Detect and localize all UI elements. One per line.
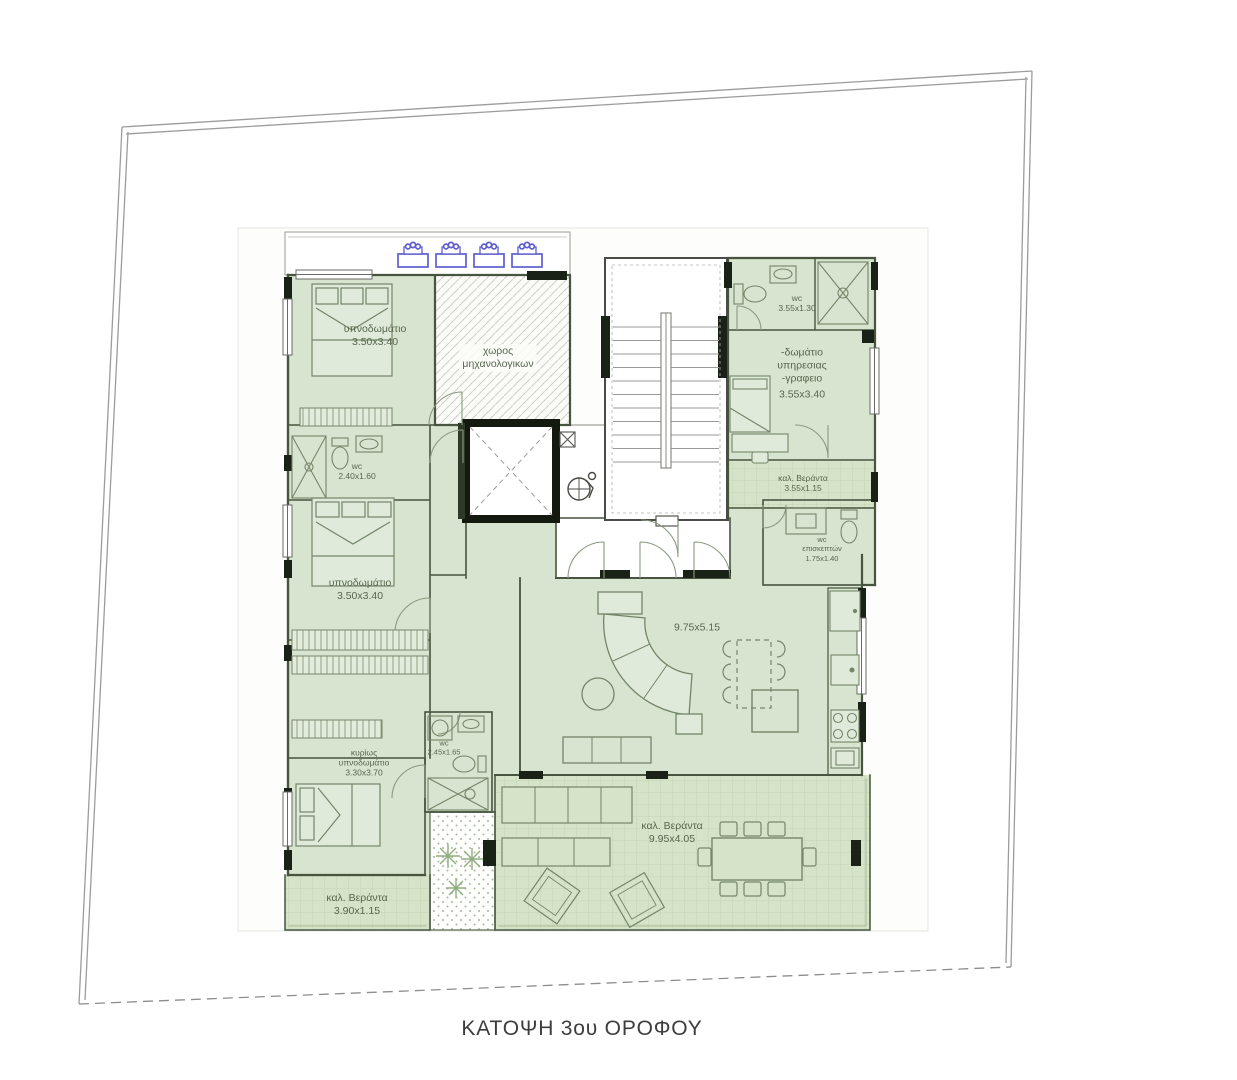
duct-box — [560, 432, 575, 447]
label-veranda-bottom-left: καλ. Βεράντα 3.90x1.15 — [326, 892, 387, 918]
label-wc-left: wc 2.40x1.60 — [338, 461, 375, 481]
lobby-floor — [556, 518, 730, 578]
label-wc-top-right: wc 3.55x1.30 — [778, 293, 815, 313]
planter-box — [430, 812, 495, 930]
bed-mid-left — [312, 498, 394, 586]
floor-plan-page: υπνοδωμάτιο 3.50x3.40 χωρος μηχανολογικω… — [0, 0, 1237, 1080]
kitchen — [830, 591, 860, 768]
wardrobe-top-left — [300, 408, 392, 426]
label-veranda-right: καλ. Βεράντα 3.55x1.15 — [778, 473, 828, 493]
floor-plan-drawing — [0, 0, 1237, 1080]
label-bedroom-mid-left: υπνοδωμάτιο 3.50x3.40 — [329, 577, 392, 603]
label-veranda-bottom: καλ. Βεράντα 9.95x4.05 — [641, 820, 702, 846]
elevator — [458, 423, 556, 519]
label-living-dining: 9.75x5.15 — [674, 622, 720, 635]
label-wc-guests: wc επισκεπτών 1.75x1.40 — [802, 535, 842, 563]
label-bedroom-top-left: υπνοδωμάτιο 3.50x3.40 — [344, 323, 407, 349]
bed-master — [296, 784, 380, 846]
label-service-room-office: -δωμάτιο υπηρεσιας -γραφειο 3.55x3.40 — [777, 346, 826, 401]
label-wc-middle: wc 2.45x1.65 — [428, 739, 461, 758]
drawing-title: ΚΑΤΟΨΗ 3ου ΟΡΟΦΟΥ — [461, 1017, 702, 1041]
label-master-bedroom: κυρίως υπνοδωμάτιο 3.30x3.70 — [339, 748, 390, 779]
label-mechanical-space: χωρος μηχανολογικων — [459, 344, 536, 372]
